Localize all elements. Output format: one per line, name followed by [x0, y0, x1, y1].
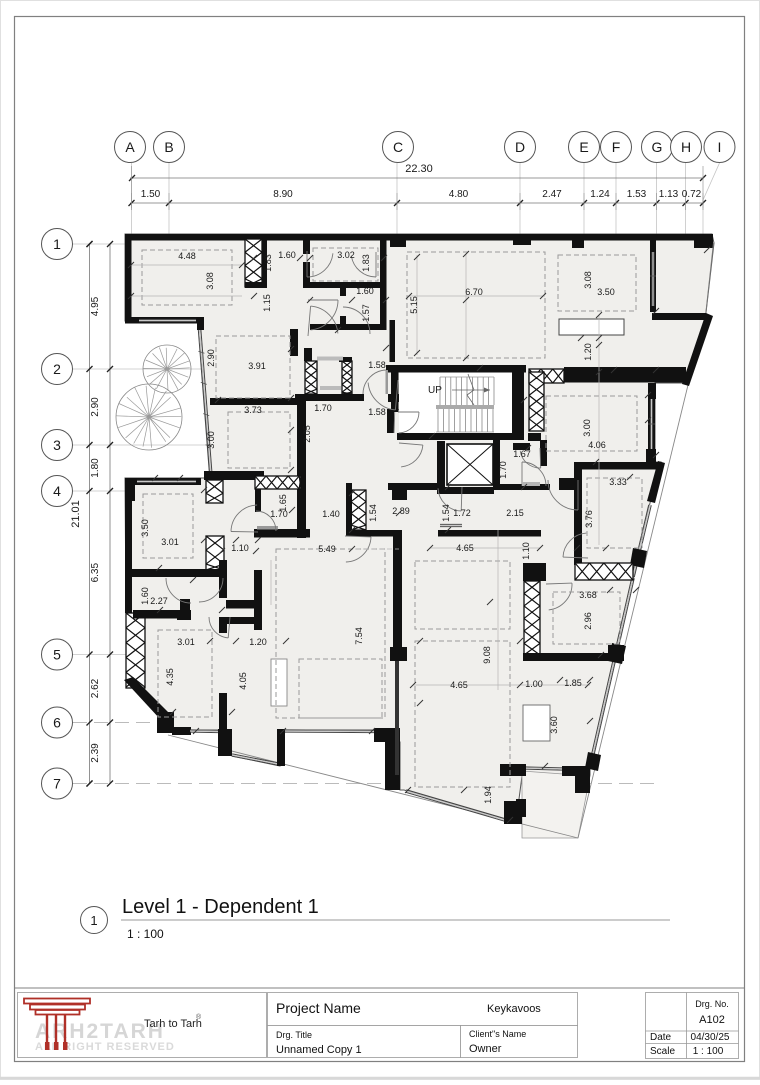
svg-text:1: 1: [90, 913, 97, 928]
svg-text:H: H: [681, 139, 691, 155]
svg-text:1.10: 1.10: [521, 542, 531, 560]
svg-text:1.50: 1.50: [141, 189, 161, 200]
svg-text:3.76: 3.76: [584, 510, 594, 528]
svg-text:1.72: 1.72: [453, 508, 471, 518]
svg-text:6: 6: [53, 715, 61, 731]
svg-text:21.01: 21.01: [70, 500, 82, 528]
svg-text:1.40: 1.40: [322, 509, 340, 519]
svg-text:1.83: 1.83: [263, 254, 273, 272]
svg-text:3.60: 3.60: [549, 716, 559, 734]
svg-text:1.15: 1.15: [262, 294, 272, 312]
svg-text:2.62: 2.62: [90, 678, 101, 698]
svg-text:1.20: 1.20: [249, 637, 267, 647]
svg-text:5.49: 5.49: [318, 544, 336, 554]
svg-text:Tarh to Tarh: Tarh to Tarh: [144, 1018, 202, 1030]
svg-text:E: E: [579, 139, 588, 155]
svg-text:1.60: 1.60: [356, 286, 374, 296]
svg-text:1.58: 1.58: [368, 407, 386, 417]
svg-text:1.94: 1.94: [483, 786, 493, 804]
svg-text:1.54: 1.54: [441, 504, 451, 522]
svg-text:3: 3: [53, 437, 61, 453]
svg-text:D: D: [515, 139, 525, 155]
svg-text:3.91: 3.91: [248, 361, 266, 371]
svg-text:1.58: 1.58: [368, 360, 386, 370]
svg-text:2.47: 2.47: [542, 189, 562, 200]
svg-text:B: B: [164, 139, 173, 155]
svg-text:3.68: 3.68: [579, 590, 597, 600]
svg-text:Owner: Owner: [469, 1043, 502, 1055]
svg-text:7.54: 7.54: [354, 627, 364, 645]
svg-text:22.30: 22.30: [405, 163, 433, 175]
svg-text:3.00: 3.00: [582, 419, 592, 437]
svg-text:04/30/25: 04/30/25: [691, 1032, 730, 1043]
svg-text:1.00: 1.00: [525, 679, 543, 689]
svg-text:3.00: 3.00: [206, 431, 216, 449]
svg-text:4.05: 4.05: [238, 672, 248, 690]
svg-text:Project Name: Project Name: [276, 1000, 361, 1016]
svg-text:UP: UP: [428, 385, 442, 396]
svg-text:3.50: 3.50: [597, 287, 615, 297]
svg-text:3.08: 3.08: [205, 272, 215, 290]
svg-text:1 : 100: 1 : 100: [693, 1046, 724, 1057]
svg-text:1.10: 1.10: [231, 543, 249, 553]
svg-text:Date: Date: [650, 1032, 672, 1043]
svg-text:1.70: 1.70: [498, 461, 508, 479]
svg-text:4.65: 4.65: [456, 543, 474, 553]
svg-text:I: I: [718, 139, 722, 155]
svg-text:G: G: [652, 139, 663, 155]
svg-text:2.39: 2.39: [90, 743, 101, 763]
svg-text:2.90: 2.90: [90, 397, 101, 417]
svg-text:1.53: 1.53: [627, 189, 647, 200]
svg-text:1.83: 1.83: [361, 254, 371, 272]
svg-text:5.15: 5.15: [409, 296, 419, 314]
svg-text:3.01: 3.01: [161, 537, 179, 547]
svg-text:1.60: 1.60: [278, 250, 296, 260]
svg-text:Drg. No.: Drg. No.: [695, 999, 729, 1009]
svg-text:3.08: 3.08: [583, 271, 593, 289]
svg-text:4.65: 4.65: [450, 680, 468, 690]
svg-text:Scale: Scale: [650, 1046, 675, 1057]
svg-text:1.70: 1.70: [314, 403, 332, 413]
svg-text:1.57: 1.57: [361, 304, 371, 322]
svg-text:A102: A102: [699, 1014, 725, 1026]
svg-text:2.96: 2.96: [583, 612, 593, 630]
svg-text:Level 1 - Dependent 1: Level 1 - Dependent 1: [122, 896, 319, 918]
svg-text:2.15: 2.15: [506, 508, 524, 518]
svg-text:6.70: 6.70: [465, 287, 483, 297]
svg-text:1.20: 1.20: [583, 343, 593, 361]
svg-text:3.02: 3.02: [337, 250, 355, 260]
svg-text:7: 7: [53, 776, 61, 792]
svg-text:3.33: 3.33: [609, 477, 627, 487]
svg-text:2.05: 2.05: [302, 425, 312, 443]
svg-text:1.80: 1.80: [90, 458, 101, 478]
svg-text:Client"s Name: Client"s Name: [469, 1029, 526, 1039]
svg-text:1.54: 1.54: [368, 504, 378, 522]
svg-text:4.35: 4.35: [165, 668, 175, 686]
svg-text:Keykavoos: Keykavoos: [487, 1003, 541, 1015]
svg-text:4.80: 4.80: [449, 189, 469, 200]
svg-text:2.27: 2.27: [150, 596, 168, 606]
svg-text:A: A: [125, 139, 135, 155]
svg-text:5: 5: [53, 647, 61, 663]
svg-text:C: C: [393, 139, 403, 155]
svg-text:4.06: 4.06: [588, 440, 606, 450]
svg-text:0.72: 0.72: [682, 189, 702, 200]
svg-text:3.73: 3.73: [244, 405, 262, 415]
svg-text:4.48: 4.48: [178, 251, 196, 261]
svg-text:1.24: 1.24: [590, 189, 610, 200]
svg-text:F: F: [612, 139, 621, 155]
svg-text:3.50: 3.50: [140, 519, 150, 537]
svg-text:9.08: 9.08: [482, 646, 492, 664]
svg-text:Drg. Title: Drg. Title: [276, 1030, 312, 1040]
svg-text:3.01: 3.01: [177, 637, 195, 647]
svg-text:1.85: 1.85: [564, 678, 582, 688]
svg-text:6.35: 6.35: [90, 563, 101, 583]
svg-text:1.70: 1.70: [270, 509, 288, 519]
svg-text:4: 4: [53, 483, 61, 499]
svg-text:Unnamed Copy 1: Unnamed Copy 1: [276, 1044, 362, 1056]
svg-text:®: ®: [196, 1013, 202, 1021]
svg-text:1.67: 1.67: [513, 449, 531, 459]
svg-text:1 : 100: 1 : 100: [127, 927, 164, 941]
svg-text:2.90: 2.90: [206, 349, 216, 367]
svg-text:4.95: 4.95: [90, 296, 101, 316]
svg-text:8.90: 8.90: [273, 189, 293, 200]
svg-text:2: 2: [53, 361, 61, 377]
svg-text:1.60: 1.60: [140, 587, 150, 605]
svg-text:1.13: 1.13: [659, 189, 679, 200]
svg-text:1: 1: [53, 236, 61, 252]
